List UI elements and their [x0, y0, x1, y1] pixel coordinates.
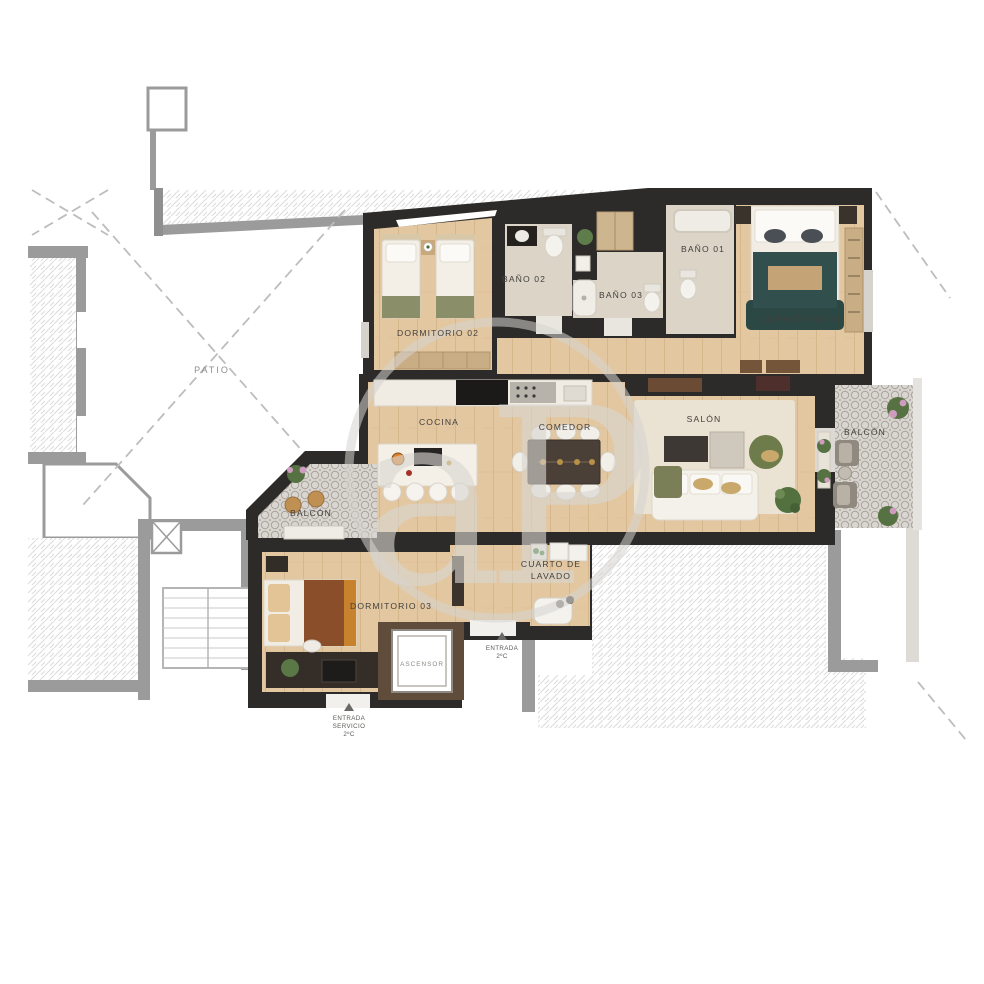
boundary-dash — [876, 192, 950, 298]
plant — [775, 487, 801, 513]
window-gap — [77, 416, 86, 452]
bed-throw — [382, 296, 420, 318]
neighbor-wall — [138, 519, 150, 700]
plant — [577, 229, 593, 245]
blanket-panel — [768, 266, 822, 290]
label-entrada-2: 2ºC — [496, 653, 508, 660]
staircase — [163, 588, 253, 668]
neighbor-wall — [154, 188, 163, 236]
pillow — [386, 244, 416, 262]
blanket-fold — [344, 580, 356, 646]
chair-cushion — [839, 443, 852, 463]
watermark: aP — [349, 322, 645, 641]
armchair-cushion — [761, 450, 779, 462]
coffee-table-dark — [664, 436, 708, 462]
watermark-logo: aP — [358, 356, 643, 641]
wardrobe — [845, 228, 863, 332]
shower-drain — [582, 296, 587, 301]
toilet — [680, 279, 696, 299]
pillow — [721, 482, 741, 494]
wall-segment — [150, 130, 156, 190]
cushion — [764, 229, 786, 243]
floor-plan-drawing: aP PATIO DORMITORIO 02 BAÑO 02 BAÑO 03 B… — [0, 0, 984, 984]
shelf-books — [756, 376, 790, 391]
sofa-throw — [654, 466, 682, 498]
pillow — [440, 244, 470, 262]
label-lavado-2: LAVADO — [531, 571, 571, 581]
label-bano-01: BAÑO 01 — [681, 244, 725, 254]
label-dormitorio-01: DORMITORIO 01 — [760, 314, 842, 324]
neighbor-wall — [828, 530, 841, 672]
coffee-table-light — [710, 432, 744, 468]
cushion — [801, 229, 823, 243]
sideboard — [648, 378, 702, 392]
window-gap — [77, 312, 86, 348]
neighbor-hatch — [28, 538, 138, 692]
boundary-dash — [918, 682, 966, 740]
label-servicio-3: 2ºC — [343, 731, 355, 738]
label-dormitorio-02: DORMITORIO 02 — [397, 328, 479, 338]
label-patio: PATIO — [194, 365, 230, 375]
label-salon: SALÓN — [687, 414, 722, 424]
label-entrada-1: ENTRADA — [486, 645, 519, 652]
terrace-wall — [906, 528, 919, 662]
pillow — [268, 584, 290, 612]
neighbor-wall — [28, 452, 86, 464]
nightstand — [839, 206, 857, 224]
sink — [576, 256, 590, 271]
door-gap — [604, 318, 632, 336]
label-bano-02: BAÑO 02 — [502, 274, 546, 284]
label-comedor: COMEDOR — [539, 422, 592, 432]
side-table — [839, 467, 852, 480]
neighbor-wall — [828, 660, 878, 672]
window-gap — [361, 322, 369, 358]
label-ascensor: ASCENSOR — [400, 661, 444, 668]
bench — [284, 526, 344, 539]
bench — [740, 360, 762, 373]
label-bano-03: BAÑO 03 — [599, 290, 643, 300]
label-balcon-left: BALCÓN — [290, 508, 332, 518]
sink — [515, 230, 529, 242]
label-cocina: COCINA — [419, 417, 459, 427]
wicker-pouf — [308, 491, 324, 507]
label-servicio-2: SERVICIO — [333, 723, 366, 730]
toilet-tank — [644, 284, 661, 292]
bathtub — [674, 210, 731, 232]
toilet-tank — [680, 270, 696, 278]
plant — [281, 659, 299, 677]
toilet — [545, 235, 563, 257]
bench — [766, 360, 800, 373]
chair-cushion — [837, 485, 850, 505]
tv-console — [322, 660, 356, 682]
rooftop-shaft — [148, 88, 186, 130]
window-gap — [864, 270, 873, 332]
label-lavado-1: CUARTO DE — [521, 559, 581, 569]
lamp — [426, 245, 429, 248]
ottoman — [303, 640, 321, 652]
pillow — [268, 614, 290, 642]
dresser — [266, 556, 288, 572]
label-servicio-1: ENTRADA — [333, 715, 366, 722]
floor-plan-page: aP PATIO DORMITORIO 02 BAÑO 02 BAÑO 03 B… — [0, 0, 984, 984]
label-balcon-right: BALCÓN — [844, 427, 886, 437]
landing-structure — [44, 464, 150, 538]
toilet — [644, 292, 660, 312]
balcony-parapet — [913, 378, 922, 530]
pillow — [693, 478, 713, 490]
bed-throw — [436, 296, 474, 318]
label-dormitorio-03: DORMITORIO 03 — [350, 601, 432, 611]
neighbor-wall — [28, 680, 150, 692]
bed-blanket — [304, 580, 344, 646]
nightstand — [735, 206, 751, 224]
